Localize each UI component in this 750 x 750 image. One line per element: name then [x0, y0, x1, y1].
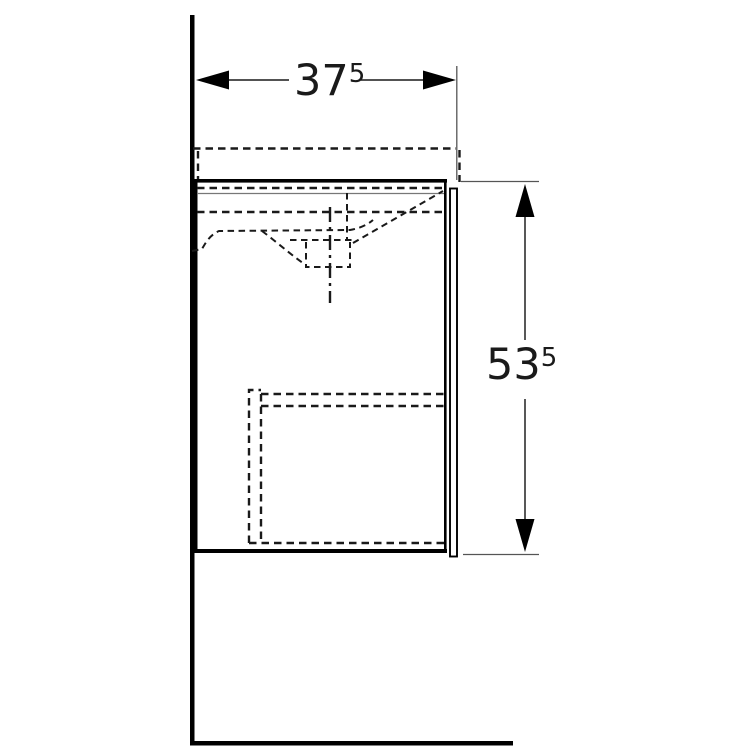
cabinet-top-panel	[191, 179, 447, 183]
wall-line	[190, 15, 195, 745]
height-arrow-up-icon	[516, 184, 535, 217]
width-dimension-label: 375	[294, 56, 365, 106]
width-dimension: 375	[196, 56, 457, 180]
door-front-panel	[450, 189, 457, 557]
siphon-cup-outline	[306, 242, 350, 267]
height-superscript: 5	[541, 343, 558, 373]
height-dimension: 535	[461, 182, 557, 555]
width-arrow-right-icon	[423, 71, 456, 90]
siphon-detail	[192, 191, 443, 303]
height-arrow-down-icon	[516, 519, 535, 552]
internal-drawer-outline	[249, 390, 447, 543]
technical-drawing-canvas: 375 535	[0, 0, 750, 750]
drawer-left-outer-dashed-line	[249, 390, 261, 543]
bowl-profile-right-diagonal	[353, 191, 443, 243]
height-dimension-label: 535	[486, 340, 557, 390]
cabinet-bottom-panel	[191, 549, 447, 553]
cabinet-dimension-drawing: 375 535	[0, 0, 750, 750]
cabinet-back-panel	[195, 179, 198, 553]
width-value: 37	[294, 56, 349, 106]
width-superscript: 5	[349, 59, 366, 89]
cabinet-front-edge	[444, 179, 447, 553]
cabinet-body	[191, 179, 457, 557]
height-value: 53	[486, 340, 541, 390]
floor-line	[190, 741, 513, 746]
bowl-wall-descending-curve	[262, 231, 306, 265]
width-arrow-left-icon	[196, 71, 229, 90]
wall-and-floor	[190, 15, 513, 746]
